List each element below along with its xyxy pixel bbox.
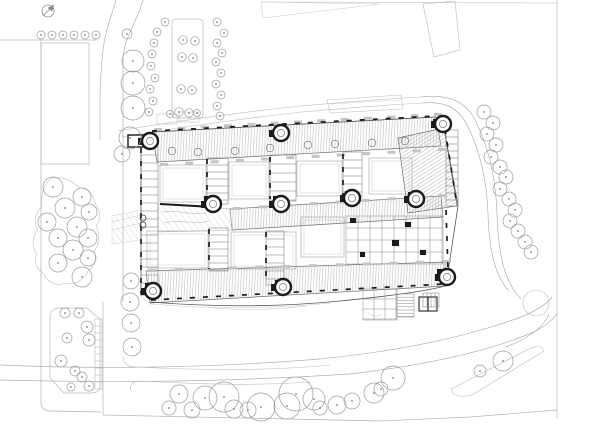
courtyard: [160, 165, 206, 202]
stair-tower-ring: [439, 269, 455, 285]
stair-tower: [141, 283, 161, 299]
canopy-dashes: [259, 205, 267, 208]
sports-field: [41, 43, 89, 164]
room-dark: [350, 218, 356, 223]
courtyard: [297, 161, 342, 196]
tree-column-right: [212, 58, 220, 66]
roundabout: [523, 290, 549, 316]
tree-trunk-dot: [530, 251, 532, 253]
tree-trunk-dot: [126, 33, 128, 35]
tree-trunk-dot: [181, 56, 183, 58]
tree-trunk-dot: [524, 241, 526, 243]
canopy-dashes: [364, 117, 372, 120]
tree-column-left: [145, 108, 153, 116]
tree-trunk-dot: [336, 404, 338, 406]
tree-row-south: [193, 386, 217, 410]
stair-tower-ring: [273, 196, 289, 212]
stair-tower-ring: [435, 116, 451, 132]
tree-trunk-dot: [178, 393, 180, 395]
tree-trunk-dot: [479, 370, 481, 372]
tree-trunk-dot: [88, 339, 90, 341]
tree-row-northeast: [486, 116, 500, 130]
canopy-dashes: [310, 202, 318, 205]
canopy-dashes: [211, 160, 219, 163]
tree-row-northwest: [81, 31, 89, 39]
canopy-dashes: [148, 269, 156, 272]
stair-tower-landing: [431, 121, 436, 128]
tree-trunk-dot: [88, 385, 90, 387]
tree-row-south: [303, 388, 325, 410]
tree-trunk-dot: [499, 166, 501, 168]
tree-trunk-dot: [499, 188, 501, 190]
tree-row-northwest: [70, 31, 78, 39]
tree-trunk-dot: [60, 360, 62, 362]
tree-column-left: [147, 62, 155, 70]
tree-trunk-dot: [156, 31, 158, 33]
tree-row-northeast: [493, 160, 507, 174]
large-trees-west: [122, 50, 144, 72]
enclosure-trees: [81, 321, 93, 333]
tree-trunk-dot: [87, 257, 89, 259]
stair-tower-ring: [408, 191, 424, 207]
tree-trunk-dot: [191, 89, 193, 91]
stair-tower-landing: [201, 201, 206, 208]
canopy-dashes: [388, 197, 396, 200]
tree-trunk-dot: [74, 370, 76, 372]
tree-row-south: [274, 393, 300, 419]
tree-column-right: [220, 29, 228, 37]
tree-trunk-dot: [81, 196, 83, 198]
room-dark: [392, 240, 399, 246]
canopy-dashes: [309, 264, 317, 267]
tree-trunk-dot: [131, 346, 133, 348]
tree-trunk-dot: [223, 396, 225, 398]
tree-trunk-dot: [73, 34, 75, 36]
tree-row-northeast: [508, 203, 522, 217]
wedge-strip: [261, 2, 380, 18]
canopy-dashes: [362, 152, 370, 155]
tree-trunk-dot: [164, 21, 166, 23]
tree-trunk-dot: [130, 280, 132, 282]
tree-trunk-dot: [221, 52, 223, 54]
tree-row-northeast: [511, 224, 525, 238]
west-terrace: [112, 210, 141, 244]
courtyard: [229, 162, 269, 199]
tree-row-south: [247, 393, 275, 421]
stair-tower-ring: [275, 279, 291, 295]
large-trees-west: [121, 96, 145, 120]
tree-row-northeast: [518, 235, 532, 249]
tree-trunk-dot: [87, 237, 89, 239]
terrace-line: [368, 313, 382, 316]
canopy-dashes: [439, 194, 447, 197]
large-trees-west: [114, 146, 130, 162]
room-dark: [420, 250, 426, 255]
canopy-dashes: [236, 159, 244, 162]
road: [0, 313, 557, 382]
parking-bed-trees: [188, 86, 197, 95]
tree-trunk-dot: [392, 377, 394, 379]
tree-column-left: [161, 18, 169, 26]
island-trees: [493, 351, 513, 371]
tree-trunk-dot: [192, 57, 194, 59]
canopy-dashes: [228, 267, 236, 270]
tree-trunk-dot: [380, 388, 382, 390]
tree-trunk-dot: [51, 34, 53, 36]
road: [103, 410, 557, 421]
tree-trunk-dot: [260, 406, 262, 408]
tree-trunk-dot: [81, 376, 83, 378]
enclosure-trees: [67, 383, 75, 391]
tree-row-south: [279, 377, 313, 411]
tree-trunk-dot: [180, 88, 182, 90]
road: [0, 297, 552, 367]
canopy-dashes: [387, 151, 395, 154]
tree-trunk-dot: [215, 83, 217, 85]
stair-tower-ring: [142, 133, 158, 149]
tree-column-right: [212, 80, 220, 88]
road: [100, 0, 116, 140]
canopy-dashes: [286, 156, 294, 159]
enclosure-trees: [60, 308, 70, 318]
tree-trunk-dot: [153, 42, 155, 44]
tree-trunk-dot: [486, 133, 488, 135]
room-dark: [360, 252, 365, 257]
tree-trunk-dot: [129, 301, 131, 303]
canopy-dashes: [312, 155, 320, 158]
tree-trunk-dot: [88, 211, 90, 213]
tree-row-south: [184, 402, 200, 418]
canopy-dashes: [416, 261, 424, 264]
tree-column-southwest: [123, 338, 141, 356]
tree-trunk-dot: [216, 105, 218, 107]
tree-row-northwest: [59, 31, 67, 39]
tree-row-northeast: [484, 150, 498, 164]
annex-court: [419, 297, 428, 311]
tree-trunk-dot: [517, 230, 519, 232]
tree-trunk-dot: [154, 77, 156, 79]
tree-trunk-dot: [129, 137, 131, 139]
canopy-dashes: [175, 268, 183, 271]
canopy-dashes: [255, 266, 263, 269]
tree-row-south: [364, 383, 384, 403]
stair-tower-ring: [273, 125, 289, 141]
parking-bed-trees: [191, 37, 200, 46]
tree-column-right: [213, 39, 221, 47]
parking-bed-trees: [185, 109, 194, 118]
tree-trunk-dot: [151, 53, 153, 55]
tree-row-south: [374, 382, 388, 396]
tree-trunk-dot: [70, 386, 72, 388]
canopy-dashes: [247, 123, 255, 126]
tree-cluster: [49, 254, 67, 272]
tree-trunk-dot: [508, 198, 510, 200]
tree-trunk-dot: [204, 397, 206, 399]
stair-tower-ring: [344, 190, 360, 206]
tree-trunk-dot: [220, 94, 222, 96]
tree-column-left: [153, 28, 161, 36]
canopy-dashes: [336, 263, 344, 266]
stair-tower-landing: [340, 195, 345, 202]
tree-trunk-dot: [168, 407, 170, 409]
tree-trunk-dot: [149, 88, 151, 90]
parking-bed: [172, 19, 203, 118]
courtyard: [147, 231, 208, 268]
enclosure-trees: [74, 308, 84, 318]
canopy-dashes: [362, 199, 370, 202]
tree-row-south: [209, 382, 239, 412]
garden-enclosure: [50, 308, 100, 393]
wing-rooms: [209, 228, 228, 271]
tree-trunk-dot: [495, 144, 497, 146]
stair-tower-landing: [269, 201, 274, 208]
tree-column-right: [217, 69, 225, 77]
canopy-dashes: [389, 262, 397, 265]
tree-row-south: [170, 385, 188, 403]
tree-trunk-dot: [64, 207, 66, 209]
north-terrace-trees: [194, 110, 201, 117]
canopy-dashes: [233, 207, 241, 210]
tree-trunk-dot: [95, 34, 97, 36]
tree-trunk-dot: [490, 156, 492, 158]
enclosure-trees: [55, 355, 67, 367]
enclosure-trees: [62, 333, 72, 343]
tree-trunk-dot: [148, 111, 150, 113]
tree-trunk-dot: [130, 322, 132, 324]
tree-trunk-dot: [196, 112, 198, 114]
tree-cluster: [67, 217, 87, 237]
tree-cluster: [79, 229, 97, 247]
tree-trunk-dot: [62, 34, 64, 36]
tree-cluster: [55, 198, 75, 218]
stair-tower-ring: [145, 283, 161, 299]
north-terrace: [327, 95, 403, 113]
tree-cluster: [43, 177, 63, 197]
annex-court: [428, 297, 437, 311]
stair-tower-ring: [205, 196, 221, 212]
tree-row-south: [344, 393, 360, 409]
tree-trunk-dot: [194, 40, 196, 42]
tree-trunk-dot: [152, 100, 154, 102]
tree-column-southwest: [122, 314, 140, 332]
tree-trunk-dot: [223, 32, 225, 34]
room-dark: [405, 222, 411, 227]
tree-trunk-dot: [76, 226, 78, 228]
courtyard: [163, 168, 203, 199]
tree-trunk-dot: [313, 398, 315, 400]
tree-cluster: [73, 188, 91, 206]
canopy-dashes: [438, 148, 446, 151]
tree-row-northeast: [503, 214, 517, 228]
courtyard: [232, 165, 266, 196]
parking-bed-trees: [189, 54, 198, 63]
tree-trunk-dot: [150, 65, 152, 67]
tree-row-northwest: [37, 31, 45, 39]
compass-layer: [42, 5, 54, 17]
courtyard: [300, 164, 339, 193]
tree-column-southwest: [123, 273, 139, 289]
tree-trunk-dot: [492, 122, 494, 124]
tree-cluster: [49, 229, 67, 247]
tree-column-left: [148, 50, 156, 58]
tree-row-northeast: [524, 245, 538, 259]
building-layer: [128, 113, 458, 320]
tree-row-south: [328, 396, 346, 414]
tree-column-southwest: [121, 293, 139, 311]
large-trees-west: [121, 71, 145, 95]
tree-row-south: [240, 402, 256, 418]
courtyard: [231, 232, 296, 269]
tree-column-left: [150, 39, 158, 47]
tree-trunk-dot: [132, 107, 134, 109]
canopy-dashes: [160, 163, 168, 166]
tree-trunk-dot: [40, 34, 42, 36]
parking-bed-trees: [178, 53, 187, 62]
tree-trunk-dot: [81, 276, 83, 278]
tree-trunk-dot: [220, 72, 222, 74]
tree-trunk-dot: [57, 262, 59, 264]
parking-bed-trees: [177, 85, 186, 94]
road: [506, 314, 549, 347]
tree-row-northwest: [92, 31, 100, 39]
tree-trunk-dot: [216, 21, 218, 23]
tree-trunk-dot: [216, 42, 218, 44]
tree-trunk-dot: [219, 115, 221, 117]
tree-cluster-hedge: [33, 178, 100, 285]
canopy-dashes: [261, 158, 269, 161]
tree-trunk-dot: [483, 111, 485, 113]
tree-column-right: [217, 91, 225, 99]
tree-row-south: [313, 401, 327, 415]
tree-trunk-dot: [72, 249, 74, 251]
tree-trunk-dot: [319, 407, 321, 409]
canopy-dashes: [363, 262, 371, 265]
canopy-dashes: [185, 162, 193, 165]
tree-column-right: [213, 102, 221, 110]
road: [123, 0, 143, 302]
tree-column-left: [146, 85, 154, 93]
canopy-dashes: [282, 265, 290, 268]
tree-trunk-dot: [46, 221, 48, 223]
tree-column-right: [213, 18, 221, 26]
site-plan-svg: [0, 0, 600, 424]
tree-trunk-dot: [182, 39, 184, 41]
tree-trunk-dot: [191, 409, 193, 411]
tree-trunk-dot: [505, 176, 507, 178]
tree-column-right: [218, 49, 226, 57]
parking-bed-trees: [179, 36, 188, 45]
tree-trunk-dot: [132, 82, 134, 84]
tree-trunk-dot: [121, 153, 123, 155]
stair-tower-landing: [271, 284, 276, 291]
tree-trunk-dot: [86, 326, 88, 328]
tree-trunk-dot: [84, 34, 86, 36]
island-trees: [474, 365, 486, 377]
tree-trunk-dot: [509, 220, 511, 222]
enclosure-trees: [77, 372, 87, 382]
tree-trunk-dot: [295, 393, 297, 395]
tree-trunk-dot: [66, 337, 68, 339]
tree-row-northeast: [502, 192, 516, 206]
tree-row-south: [162, 401, 176, 415]
tree-trunk-dot: [78, 312, 80, 314]
tree-cluster: [72, 267, 92, 287]
tree-column-left: [149, 97, 157, 105]
tree-trunk-dot: [188, 112, 190, 114]
tree-cluster: [80, 250, 96, 266]
enclosure-trees: [83, 334, 95, 346]
tree-trunk-dot: [233, 408, 235, 410]
tree-trunk-dot: [57, 237, 59, 239]
tree-trunk-dot: [169, 113, 171, 115]
large-trees-west: [122, 29, 132, 39]
tree-row-northwest: [48, 31, 56, 39]
tree-trunk-dot: [178, 111, 180, 113]
enclosure-trees: [84, 381, 94, 391]
tree-trunk-dot: [132, 60, 134, 62]
tree-trunk-dot: [502, 360, 504, 362]
canopy-dashes: [413, 149, 421, 152]
tree-column-left: [151, 74, 159, 82]
stair-tower-landing: [141, 288, 146, 295]
stair-tower-landing: [269, 130, 274, 137]
tree-row-south: [381, 366, 405, 390]
stair-tower-landing: [404, 196, 409, 203]
stair-tower-landing: [435, 274, 440, 281]
neighbor-building: [423, 1, 460, 57]
tree-trunk-dot: [286, 405, 288, 407]
tree-trunk-dot: [514, 209, 516, 211]
tree-trunk-dot: [64, 312, 66, 314]
tree-trunk-dot: [52, 186, 54, 188]
wing-rooms: [270, 155, 296, 201]
walkway: [123, 356, 330, 370]
tree-trunk-dot: [215, 61, 217, 63]
site-plan-sheet: [0, 0, 600, 424]
tree-cluster: [81, 204, 97, 220]
tree-trunk-dot: [351, 400, 353, 402]
